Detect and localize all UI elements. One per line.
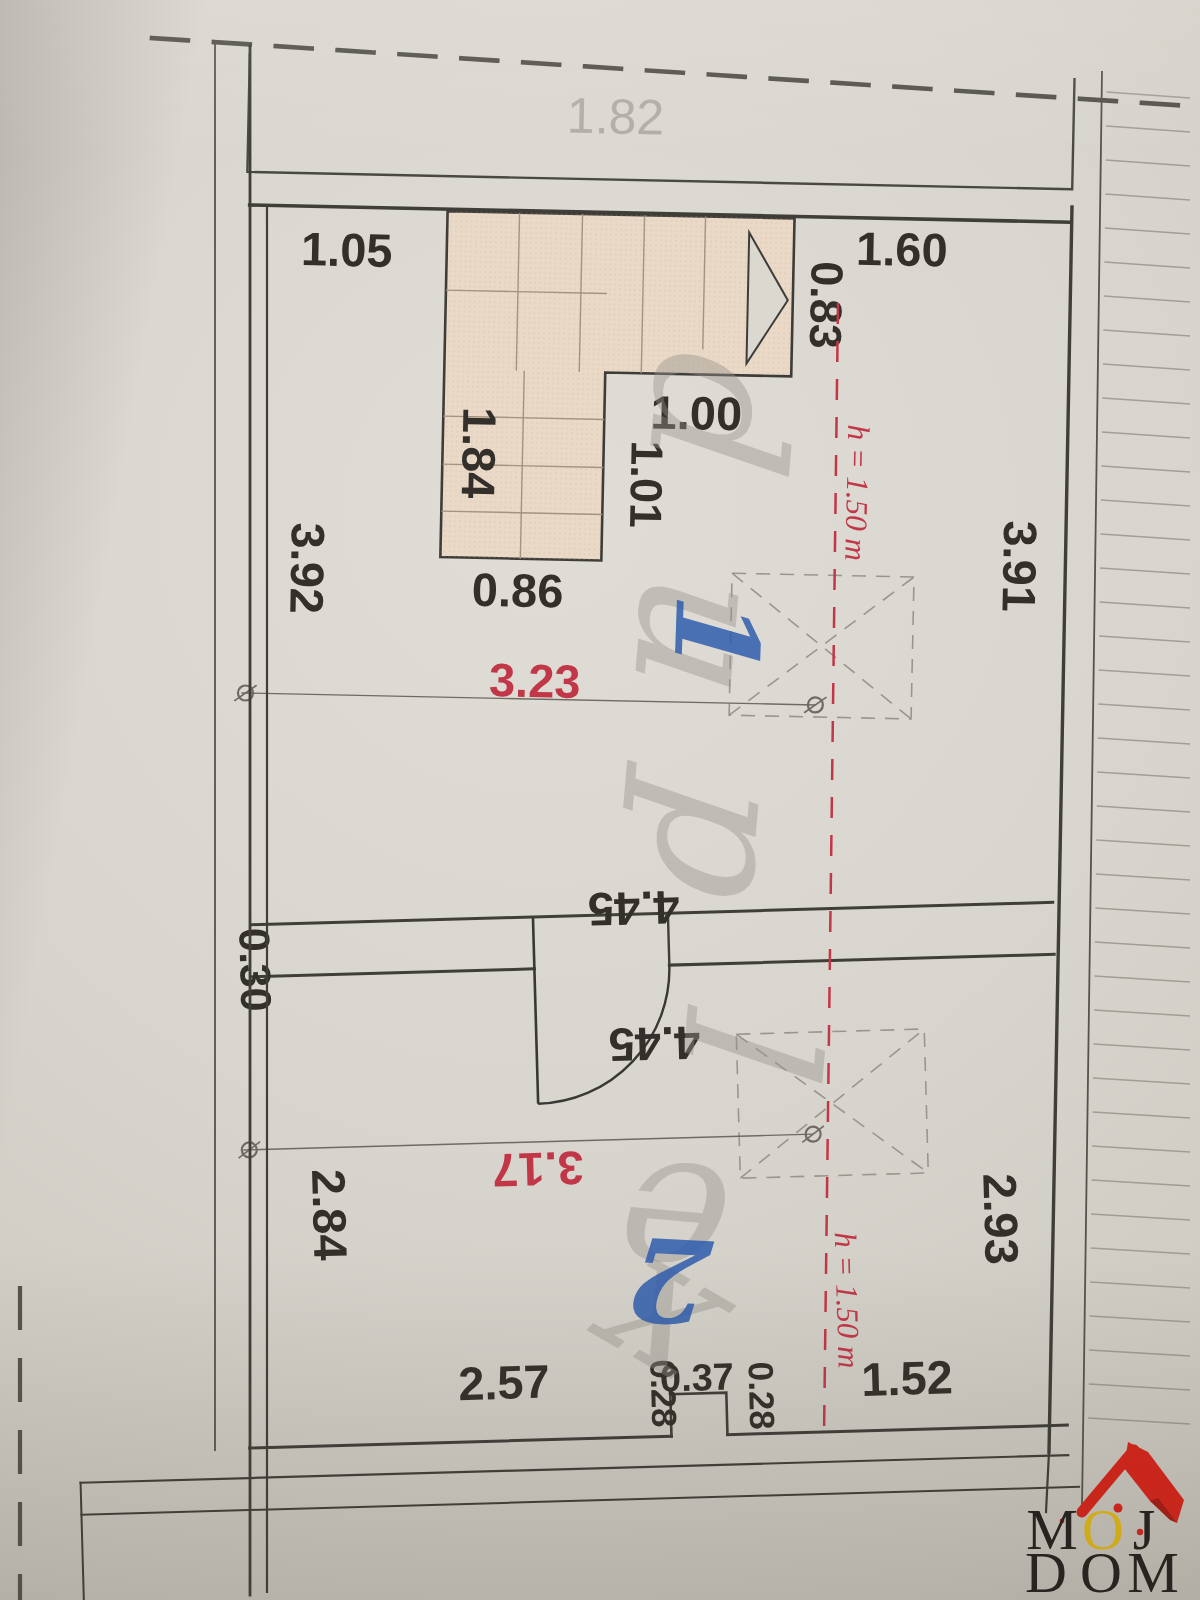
hatch-line bbox=[1102, 398, 1190, 404]
floor-plan-svg: 1.821.051.600.831.841.001.013.923.910.86… bbox=[0, 0, 1200, 1600]
logo-letter: D bbox=[1025, 1540, 1067, 1600]
room-number: 2 bbox=[628, 1211, 723, 1350]
hatch-line bbox=[1102, 432, 1190, 438]
hatch-line bbox=[1106, 126, 1190, 132]
hatch-line bbox=[1103, 364, 1190, 370]
hatch-line bbox=[1088, 1418, 1190, 1424]
hatch-line bbox=[1100, 602, 1190, 608]
dimension-label: 3.91 bbox=[992, 520, 1047, 613]
watermark-letter: l bbox=[638, 995, 860, 1088]
hatch-line bbox=[1099, 670, 1190, 676]
dimension-label: 1.05 bbox=[300, 222, 393, 277]
outer-right-line bbox=[1082, 72, 1102, 1508]
hatch-line bbox=[1089, 1384, 1190, 1390]
hatch-line bbox=[1107, 92, 1190, 98]
hatch-line bbox=[1098, 738, 1190, 744]
hatch-line bbox=[1101, 500, 1190, 506]
top-dashed-line bbox=[152, 38, 1190, 106]
dimension-label: 1.52 bbox=[861, 1350, 954, 1406]
logo-text: MOJDOM bbox=[1025, 1497, 1179, 1600]
balcony-width-label: 1.82 bbox=[566, 88, 664, 146]
floor-plan-photo: 1.821.051.600.831.841.001.013.923.910.86… bbox=[0, 0, 1200, 1600]
room-number: 1 bbox=[648, 583, 786, 668]
dimension-label: 4.45 bbox=[587, 881, 680, 937]
hatch-line bbox=[1095, 942, 1190, 948]
hatch-line bbox=[1105, 228, 1190, 234]
dimension-label: 3.92 bbox=[280, 522, 335, 615]
logo-letter: O bbox=[1080, 1540, 1122, 1600]
hatch-line bbox=[1097, 772, 1190, 778]
hatch-line bbox=[1093, 1078, 1190, 1084]
dimension-label: 1.84 bbox=[452, 407, 507, 500]
dimension-label: 1.60 bbox=[856, 222, 949, 277]
hatch-line bbox=[1089, 1350, 1190, 1356]
hatch-line bbox=[1104, 296, 1190, 302]
hatch-line bbox=[1090, 1316, 1190, 1322]
hatch-line bbox=[1105, 194, 1190, 200]
wall-thickness-label: 0.30 bbox=[230, 927, 280, 1012]
hatch-line bbox=[1106, 160, 1190, 166]
hatch-line bbox=[1095, 908, 1190, 914]
hatch-line bbox=[1104, 262, 1190, 268]
hatch-line bbox=[1094, 1010, 1190, 1016]
dimension-label: 2.57 bbox=[457, 1355, 550, 1411]
hatch-line bbox=[1092, 1146, 1190, 1152]
room-width-label: 3.17 bbox=[492, 1142, 585, 1198]
hatch-line bbox=[1101, 534, 1190, 540]
hatch-line bbox=[1096, 840, 1190, 846]
roof-hatching bbox=[1088, 92, 1190, 1424]
hatch-line bbox=[1096, 874, 1190, 880]
hatch-line bbox=[1098, 704, 1190, 710]
hatch-line bbox=[1102, 466, 1190, 472]
dimension-label: 2.84 bbox=[302, 1168, 358, 1261]
room-numbers: 12 bbox=[628, 583, 785, 1350]
hatch-line bbox=[1099, 636, 1190, 642]
dimension-label: 0.83 bbox=[800, 261, 853, 350]
dimension-label: 0.28 bbox=[741, 1361, 782, 1430]
hatch-line bbox=[1094, 976, 1190, 982]
dimension-label: 0.86 bbox=[471, 563, 564, 618]
height-note-label: h = 1.50 m bbox=[828, 1232, 867, 1369]
right-wall bbox=[1049, 207, 1072, 1452]
hatch-line bbox=[1090, 1282, 1190, 1288]
hatch-line bbox=[1097, 806, 1190, 812]
hatch-line bbox=[1091, 1214, 1190, 1220]
room-width-label: 3.23 bbox=[489, 653, 582, 708]
hatch-line bbox=[1091, 1248, 1190, 1254]
height-note-label: h = 1.50 m bbox=[838, 424, 876, 561]
hatch-line bbox=[1092, 1180, 1190, 1186]
logo-letter: M bbox=[1127, 1540, 1179, 1600]
room-2: 4.454.450.303.172.842.932.570.370.280.28… bbox=[64, 870, 1081, 1600]
dimension-label: 1.01 bbox=[620, 440, 673, 529]
hatch-line bbox=[1093, 1112, 1190, 1118]
hatch-line bbox=[1103, 330, 1190, 336]
hatch-line bbox=[1100, 568, 1190, 574]
hatch-line bbox=[1093, 1044, 1190, 1050]
door-leaf bbox=[533, 917, 538, 1104]
dimension-label: 2.93 bbox=[973, 1172, 1029, 1265]
bottom-wall bbox=[79, 1383, 1082, 1600]
